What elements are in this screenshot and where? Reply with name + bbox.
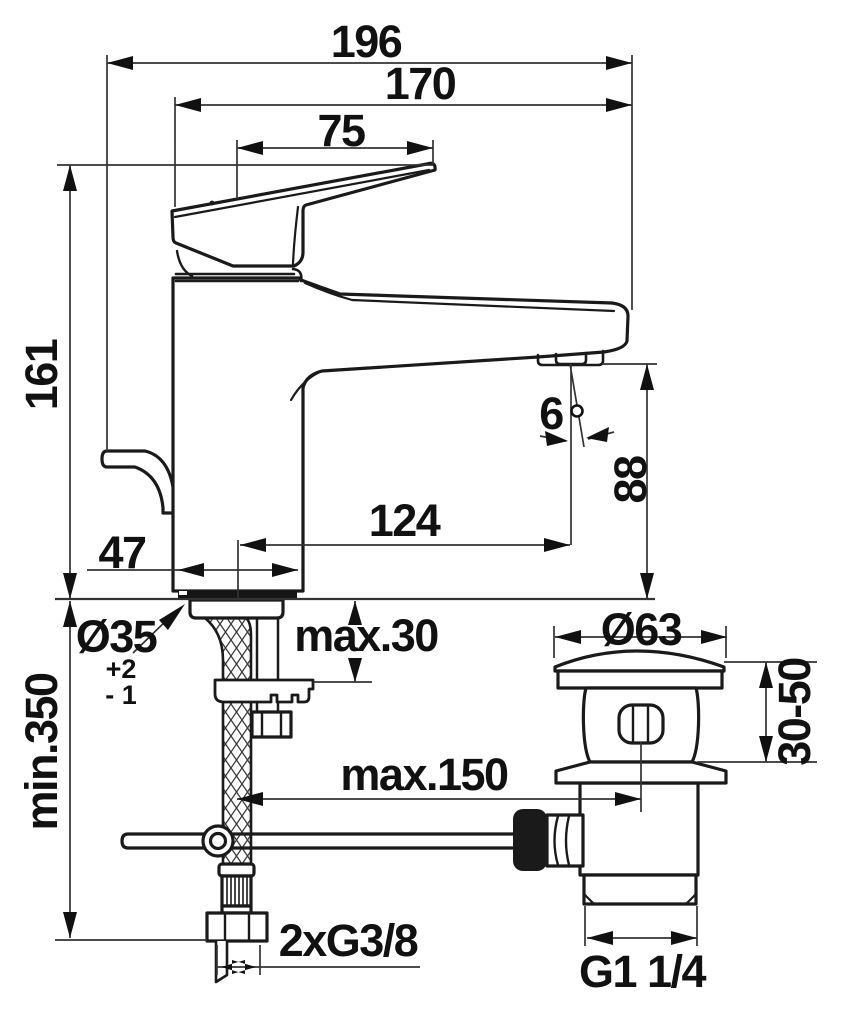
body-front-fillet <box>177 251 192 276</box>
lever-handle <box>172 163 435 266</box>
dim-label-88: 88 <box>605 456 656 504</box>
dim-label-min350: min.350 <box>16 673 67 831</box>
dim-label-170: 170 <box>385 58 456 109</box>
dim-label-47: 47 <box>98 527 146 578</box>
dim-label-thread-supply: 2xG3/8 <box>279 915 418 966</box>
drain-tailpiece <box>584 875 696 904</box>
pull-rod <box>102 451 174 513</box>
dim-label-angle: 6 <box>539 388 563 439</box>
degree-symbol-icon <box>572 406 583 417</box>
base-gasket-notch <box>179 591 187 595</box>
dim-label-161: 161 <box>16 339 67 410</box>
pivot-rod <box>122 834 513 848</box>
connection-boss <box>190 600 283 618</box>
dim-label-tol-minus: - 1 <box>105 680 137 710</box>
drain-knob <box>619 705 663 743</box>
lever-mark <box>210 201 215 206</box>
faucet-dimension-drawing: 196 170 75 161 47 124 88 6 Ø35 +2 - 1 mi… <box>0 0 851 1024</box>
dim-label-124: 124 <box>369 495 441 546</box>
dim-label-75: 75 <box>317 105 365 156</box>
dim-label-max150: max.150 <box>340 749 508 800</box>
drain-assembly <box>513 651 726 904</box>
dim-label-dia63: Ø63 <box>601 604 682 655</box>
hose-end-fitting <box>207 864 267 982</box>
ball-joint-nut <box>513 809 547 871</box>
drawing-canvas: 196 170 75 161 47 124 88 6 Ø35 +2 - 1 mi… <box>0 0 851 1024</box>
mounting-nut <box>252 712 291 737</box>
dim-label-max30: max.30 <box>294 610 438 661</box>
mounting-plate <box>215 680 313 702</box>
dim-label-thread-waste: G1 1/4 <box>579 946 707 997</box>
rod-coupler <box>203 826 233 856</box>
drain-lower-body <box>580 783 698 875</box>
drain-collar <box>558 671 722 688</box>
dim-label-deck-range: 30-50 <box>769 658 820 766</box>
